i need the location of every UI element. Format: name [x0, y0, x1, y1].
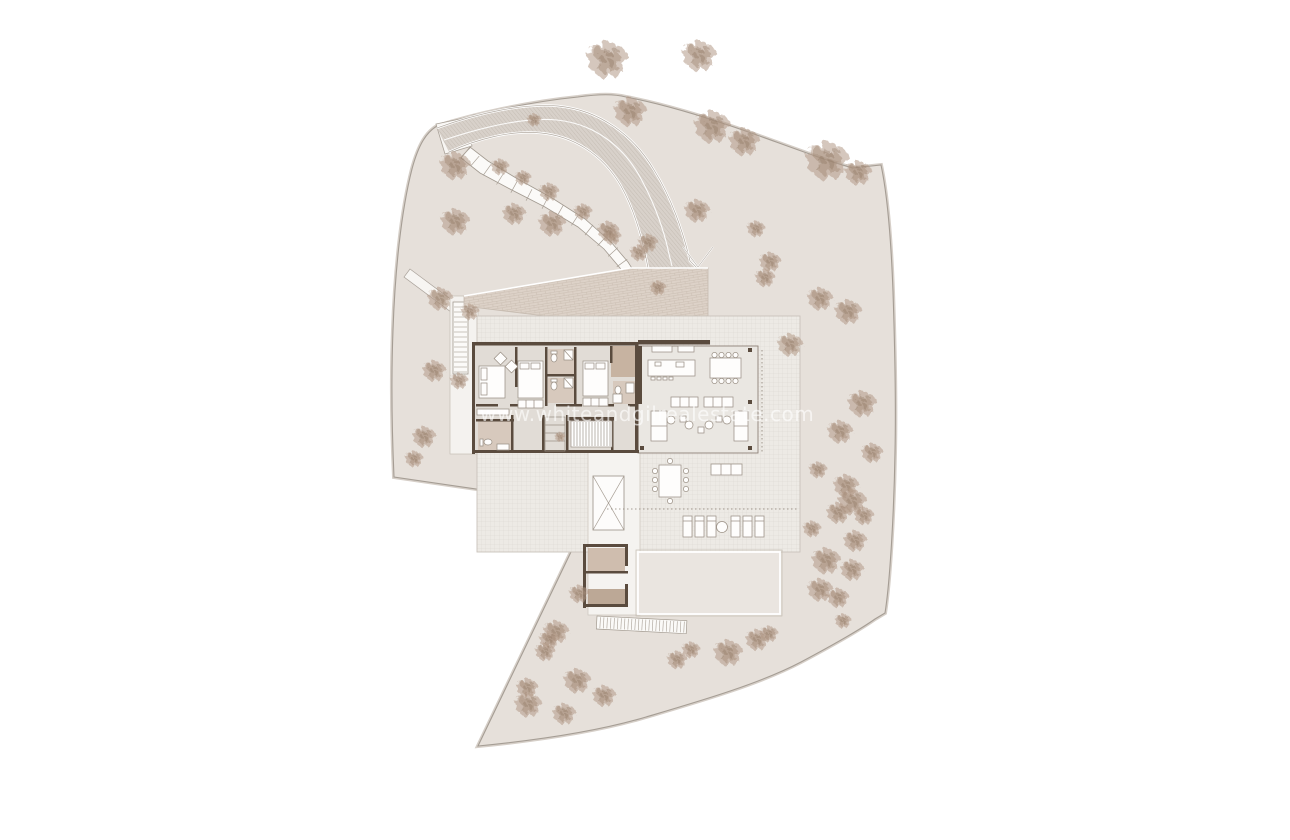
- side-table: [716, 416, 722, 422]
- armchair: [705, 421, 713, 429]
- wall: [472, 342, 638, 346]
- tree: [683, 40, 715, 70]
- sun-lounger: [707, 516, 716, 537]
- chair: [719, 352, 724, 357]
- chair: [652, 486, 657, 491]
- pool-side-table: [717, 522, 728, 533]
- chair: [667, 458, 672, 463]
- island-sink: [655, 362, 661, 366]
- wall: [583, 604, 628, 607]
- chair: [719, 378, 724, 383]
- wall: [583, 571, 628, 574]
- wall: [511, 415, 514, 453]
- wall: [542, 415, 545, 453]
- dining-table: [710, 358, 741, 378]
- chair: [726, 378, 731, 383]
- shower: [613, 394, 622, 403]
- wall: [638, 346, 642, 404]
- pillow: [520, 363, 529, 369]
- wall: [547, 374, 575, 377]
- wall: [628, 404, 636, 407]
- stool: [663, 377, 667, 380]
- armchair: [723, 416, 731, 424]
- armchair: [667, 416, 675, 424]
- toilet-tank: [480, 439, 483, 446]
- chair: [683, 468, 688, 473]
- wardrobe: [583, 398, 608, 406]
- chair: [726, 352, 731, 357]
- wall: [625, 584, 628, 607]
- wall: [635, 344, 639, 453]
- cooktop: [676, 362, 684, 367]
- pillow: [585, 363, 594, 369]
- sink: [497, 444, 509, 450]
- wall: [476, 404, 498, 407]
- terrace-dining-table: [659, 465, 681, 497]
- kitchen-counter: [652, 346, 672, 352]
- stool: [657, 377, 661, 380]
- pillow: [481, 368, 487, 380]
- side-table: [698, 427, 704, 433]
- side-table: [680, 416, 686, 422]
- pool-room-floor: [588, 548, 625, 573]
- sun-lounger: [743, 516, 752, 537]
- sun-lounger: [683, 516, 692, 537]
- chair: [652, 477, 657, 482]
- column: [748, 446, 752, 450]
- chair: [733, 352, 738, 357]
- wall: [625, 544, 628, 566]
- site-plan-drawing: [0, 0, 1290, 840]
- store-room-floor: [588, 589, 625, 604]
- pillow: [481, 383, 487, 395]
- bench: [477, 409, 509, 415]
- wall: [476, 419, 514, 422]
- toilet: [551, 382, 557, 390]
- wall: [610, 346, 613, 363]
- chair: [712, 352, 717, 357]
- sofa: [671, 397, 698, 407]
- chair: [733, 378, 738, 383]
- chair: [667, 498, 672, 503]
- sink: [626, 383, 634, 393]
- column: [640, 446, 644, 450]
- wardrobe: [518, 400, 543, 408]
- sun-lounger: [695, 516, 704, 537]
- sideboard: [711, 464, 742, 475]
- wall: [566, 415, 569, 453]
- chair: [652, 468, 657, 473]
- column: [748, 400, 752, 404]
- chair: [683, 486, 688, 491]
- wall: [556, 404, 582, 407]
- sofa: [704, 397, 733, 407]
- toilet: [484, 439, 492, 445]
- pillow: [596, 363, 605, 369]
- site-plan-page: www.whiteandgilrealestate.com: [0, 0, 1290, 840]
- tree: [587, 40, 626, 77]
- wall: [638, 340, 710, 345]
- sun-lounger: [731, 516, 740, 537]
- toilet-tank: [551, 379, 557, 382]
- toilet: [615, 386, 621, 394]
- chair: [712, 378, 717, 383]
- lower-terrace: [638, 552, 780, 614]
- stool: [651, 377, 655, 380]
- sun-lounger: [755, 516, 764, 537]
- toilet-tank: [551, 351, 557, 354]
- stool: [669, 377, 673, 380]
- toilet: [551, 354, 557, 362]
- wall: [472, 344, 475, 454]
- wall: [472, 450, 639, 453]
- pillow: [531, 363, 540, 369]
- wall: [568, 418, 614, 421]
- kitchen-counter: [678, 346, 694, 352]
- chair: [683, 477, 688, 482]
- column: [748, 348, 752, 352]
- wall: [583, 544, 628, 547]
- entry-vestibule-floor: [611, 346, 637, 377]
